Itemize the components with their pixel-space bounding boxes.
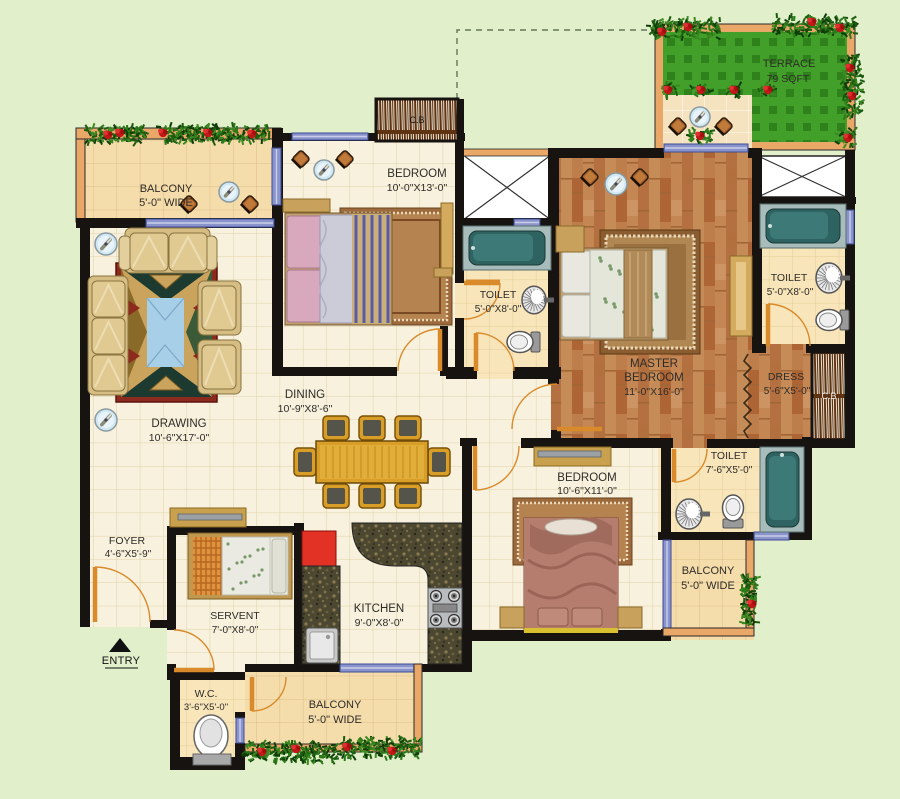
svg-text:BEDROOM: BEDROOM <box>557 472 616 484</box>
svg-text:5'-0" WIDE: 5'-0" WIDE <box>139 197 193 209</box>
svg-text:BALCONY: BALCONY <box>140 183 193 195</box>
svg-text:BALCONY: BALCONY <box>309 699 362 711</box>
svg-text:TERRACE: TERRACE <box>763 58 816 70</box>
svg-text:TOILET: TOILET <box>480 289 517 301</box>
svg-text:5'-0" WIDE: 5'-0" WIDE <box>681 580 735 592</box>
svg-text:7'-6"X5'-0": 7'-6"X5'-0" <box>706 465 753 476</box>
svg-text:DINING: DINING <box>285 389 325 401</box>
svg-text:5'-0"X8'-0": 5'-0"X8'-0" <box>767 287 814 298</box>
svg-text:5'-6"X5'-0": 5'-6"X5'-0" <box>764 386 811 397</box>
svg-text:BALCONY: BALCONY <box>682 565 735 577</box>
svg-text:10'-9"X8'-6": 10'-9"X8'-6" <box>278 403 333 415</box>
svg-text:MASTER: MASTER <box>630 358 678 370</box>
svg-text:7'-0"X8'-0": 7'-0"X8'-0" <box>212 625 259 636</box>
svg-text:DRESS: DRESS <box>768 371 804 383</box>
svg-text:5'-0" WIDE: 5'-0" WIDE <box>308 714 362 726</box>
svg-text:TOILET: TOILET <box>771 272 808 284</box>
svg-text:3'-6"X5'-0": 3'-6"X5'-0" <box>184 702 228 713</box>
svg-text:4'-6"X5'-9": 4'-6"X5'-9" <box>105 549 152 560</box>
svg-text:SERVENT: SERVENT <box>210 610 260 622</box>
svg-text:9'-0"X8'-0": 9'-0"X8'-0" <box>355 617 404 629</box>
svg-text:W.C.: W.C. <box>195 688 218 700</box>
svg-text:10'-0"X13'-0": 10'-0"X13'-0" <box>387 182 448 194</box>
svg-text:79 SQFT: 79 SQFT <box>767 73 810 85</box>
svg-text:5'-0"X8'-0": 5'-0"X8'-0" <box>475 304 522 315</box>
svg-text:C.B: C.B <box>821 391 836 401</box>
svg-text:KITCHEN: KITCHEN <box>354 603 404 615</box>
svg-text:BEDROOM: BEDROOM <box>387 168 446 180</box>
svg-text:DRAWING: DRAWING <box>151 418 206 430</box>
svg-text:ENTRY: ENTRY <box>102 655 141 667</box>
svg-text:TOILET: TOILET <box>711 450 748 462</box>
svg-text:11'-0"X16'-0": 11'-0"X16'-0" <box>624 386 684 398</box>
svg-text:C.B: C.B <box>409 115 424 125</box>
svg-text:10'-6"X17'-0": 10'-6"X17'-0" <box>149 432 210 444</box>
svg-text:10'-6"X11'-0": 10'-6"X11'-0" <box>557 485 617 497</box>
svg-text:FOYER: FOYER <box>109 535 146 547</box>
svg-text:BEDROOM: BEDROOM <box>624 372 683 384</box>
